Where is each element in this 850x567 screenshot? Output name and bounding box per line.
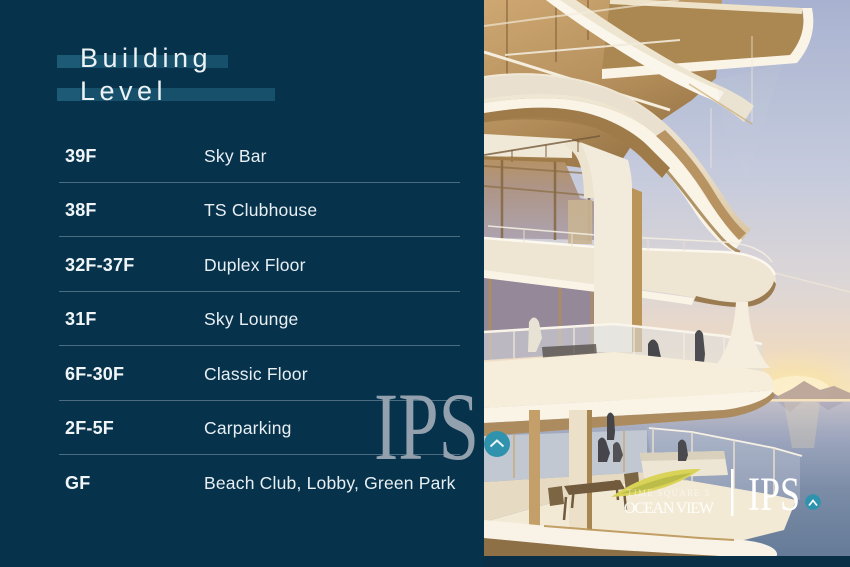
svg-text:OCEAN VIEW: OCEAN VIEW <box>624 500 715 517</box>
svg-text:TIME SQUARE 3: TIME SQUARE 3 <box>627 488 710 498</box>
svg-text:IPS: IPS <box>374 386 479 466</box>
svg-text:IPS: IPS <box>748 468 800 521</box>
